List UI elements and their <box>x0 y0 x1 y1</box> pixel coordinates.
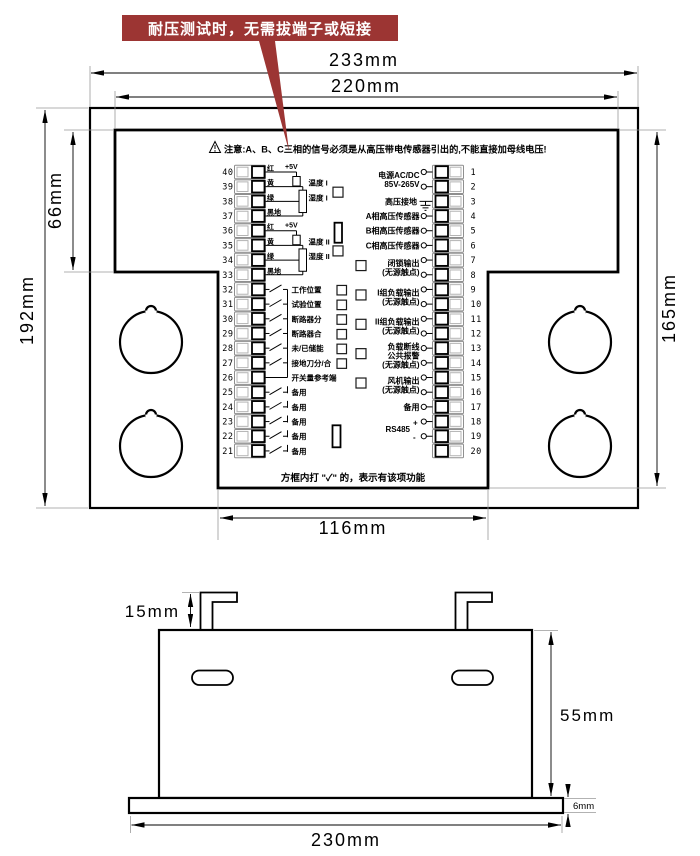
group-label: 风机输出 <box>388 375 420 385</box>
rs485-minus: - <box>413 433 416 442</box>
switch-label: 断路器分 <box>292 314 322 324</box>
group-label: C相高压传感器 <box>366 240 421 250</box>
terminal-row-left: 34 <box>222 253 265 267</box>
terminal-row-left: 29 <box>222 327 265 341</box>
terminal-row-left: 35 <box>222 239 265 253</box>
wire-label: 黑地 <box>267 208 281 217</box>
terminal-number: 18 <box>471 418 482 428</box>
function-checkbox <box>356 261 366 271</box>
group-label: A相高压传感器 <box>366 211 421 221</box>
wire-label: 绿 <box>267 193 275 202</box>
terminal-number: 25 <box>222 388 233 398</box>
group-label: 备用 <box>403 402 420 412</box>
group-label: 电源AC/DC <box>378 170 420 180</box>
terminal-number: 13 <box>471 344 482 354</box>
dim-top-band: 66mm <box>45 171 65 229</box>
switch-label: 备用 <box>291 431 307 441</box>
terminal-number: 6 <box>471 241 477 251</box>
sensor-label: 湿度 II <box>309 251 330 261</box>
terminal-row-right: 11 <box>433 312 482 326</box>
terminal-number: 31 <box>222 300 233 310</box>
switch-label: 备用 <box>291 446 307 456</box>
terminal-row-right: 19 <box>433 429 482 443</box>
terminal-row-left: 22 <box>222 429 265 443</box>
function-checkbox <box>337 359 347 369</box>
warning-text: 注意:A、B、C三相的信号必须是从高压带电传感器引出的,不能直接加母线电压! <box>224 144 547 155</box>
function-checkbox <box>356 319 366 329</box>
dim-hook: 15mm <box>125 602 180 621</box>
terminal-row-left: 38 <box>222 195 265 209</box>
switch-label: 试验位置 <box>292 299 322 309</box>
terminal-row-left: 40 <box>222 165 265 179</box>
group-label: 负载断线 <box>388 342 420 352</box>
terminal-number: 34 <box>222 256 233 266</box>
terminal-number: 39 <box>222 183 233 193</box>
function-checkbox <box>337 329 347 339</box>
dim-flange-width: 230mm <box>311 830 381 850</box>
terminal-number: 11 <box>471 315 482 325</box>
switch-label: 备用 <box>291 402 307 412</box>
terminal-number: 10 <box>471 300 482 310</box>
terminal-number: 15 <box>471 374 482 384</box>
terminal-number: 32 <box>222 285 233 295</box>
function-checkbox <box>337 315 347 325</box>
terminal-row-right: 18 <box>433 415 482 429</box>
terminal-row-right: 13 <box>433 341 482 355</box>
terminal-number: 33 <box>222 271 233 281</box>
group-label: B相高压传感器 <box>366 226 421 236</box>
terminal-number: 9 <box>471 285 477 295</box>
dim-outer-height: 192mm <box>17 275 37 345</box>
terminal-number: 35 <box>222 241 233 251</box>
switch-label: 工作位置 <box>292 284 322 294</box>
group-label: (无源触点) <box>382 384 420 394</box>
terminal-row-left: 24 <box>222 400 265 414</box>
right-hook <box>456 593 493 631</box>
switch-label: 开关量参考端 <box>292 373 337 383</box>
terminal-row-right: 10 <box>433 297 482 311</box>
group-label: (无源触点) <box>382 326 420 336</box>
terminal-row-left: 30 <box>222 312 265 326</box>
terminal-number: 24 <box>222 403 233 413</box>
body-outline <box>159 630 532 798</box>
terminal-number: 4 <box>471 212 477 222</box>
flange-outline <box>129 798 563 813</box>
group-label: 公共报警 <box>388 351 420 361</box>
terminal-row-left: 28 <box>222 341 265 355</box>
wire-label: 红 <box>267 164 274 173</box>
function-checkbox <box>356 349 366 359</box>
dim-column-width: 116mm <box>319 518 388 538</box>
switch-label: 未/已储能 <box>292 343 325 353</box>
terminal-number: 12 <box>471 329 482 339</box>
terminal-row-right: 8 <box>433 268 477 282</box>
sensor-label: 温度 II <box>309 236 330 246</box>
switch-label: 接地刀分/合 <box>292 358 332 368</box>
supply-label: +5V <box>285 223 298 230</box>
group-label: (无源触点) <box>382 360 420 370</box>
switch-label: 断路器合 <box>292 328 322 338</box>
terminal-number: 22 <box>222 432 233 442</box>
terminal-row-right: 5 <box>433 224 477 238</box>
terminal-number: 23 <box>222 418 233 428</box>
function-checkbox <box>337 300 347 310</box>
terminal-number: 19 <box>471 432 482 442</box>
wire-label: 黄 <box>267 237 274 246</box>
terminal-row-left: 21 <box>222 444 265 458</box>
wire-label: 黑地 <box>267 266 281 275</box>
terminal-row-right: 17 <box>433 400 482 414</box>
group-label: (无源触点) <box>382 267 420 277</box>
terminal-number: 14 <box>471 359 482 369</box>
terminal-row-left: 31 <box>222 297 265 311</box>
side-view: 15mm 55mm 6mm 230mm <box>125 593 615 851</box>
banner: 耐压测试时，无需拔端子或短接 <box>122 15 398 41</box>
wire-label: 黄 <box>267 178 274 187</box>
group-label: 85V-265V <box>384 180 420 189</box>
terminal-row-right: 4 <box>433 209 477 223</box>
terminal-number: 5 <box>471 227 477 237</box>
terminal-row-right: 1 <box>433 165 477 179</box>
terminal-number: 38 <box>222 197 233 207</box>
dim-outer-width: 233mm <box>329 50 399 70</box>
terminal-row-right: 20 <box>433 444 482 458</box>
sensor-label: 温度 I <box>309 178 328 188</box>
terminal-row-left: 23 <box>222 415 265 429</box>
group-label: (无源触点) <box>382 296 420 306</box>
terminal-number: 28 <box>222 344 233 354</box>
group-label: 高压接地 <box>385 196 417 206</box>
dim-body-height: 55mm <box>560 706 615 725</box>
function-checkbox <box>356 290 366 300</box>
dim-flange-thickness: 6mm <box>573 801 594 812</box>
group-label: II组负载输出 <box>375 317 419 327</box>
terminal-row-right: 7 <box>433 253 477 267</box>
switch-label: 备用 <box>291 417 307 427</box>
terminal-number: 40 <box>222 168 233 178</box>
terminal-number: 27 <box>222 359 233 369</box>
terminal-row-right: 15 <box>433 371 482 385</box>
terminal-number: 7 <box>471 256 477 266</box>
function-checkbox <box>333 187 343 197</box>
terminal-number: 36 <box>222 227 233 237</box>
terminal-row-right: 12 <box>433 327 482 341</box>
wire-label: 红 <box>267 222 274 231</box>
terminal-number: 37 <box>222 212 233 222</box>
terminal-row-left: 25 <box>222 385 265 399</box>
terminal-row-right: 3 <box>433 195 477 209</box>
terminal-row-right: 6 <box>433 239 477 253</box>
function-checkbox <box>337 285 347 295</box>
terminal-row-left: 37 <box>222 209 265 223</box>
drawing-canvas: 233mm 220mm 192mm 66mm 165mm 116mm 注意:A、… <box>0 0 700 856</box>
terminal-row-left: 32 <box>222 283 265 297</box>
terminal-number: 16 <box>471 388 482 398</box>
terminal-row-right: 9 <box>433 283 477 297</box>
terminal-row-left: 36 <box>222 224 265 238</box>
terminal-number: 2 <box>471 183 477 193</box>
function-checkbox <box>333 246 343 256</box>
group-label: I组负载输出 <box>377 287 419 297</box>
terminal-number: 17 <box>471 403 482 413</box>
terminal-number: 29 <box>222 329 233 339</box>
dim-inner-height: 165mm <box>659 273 679 343</box>
switch-label: 备用 <box>291 387 307 397</box>
terminal-row-right: 14 <box>433 356 482 370</box>
terminal-row-left: 39 <box>222 180 265 194</box>
terminal-number: 30 <box>222 315 233 325</box>
group-label: 闭锁输出 <box>388 258 420 268</box>
terminal-number: 8 <box>471 271 477 281</box>
technical-drawing: 233mm 220mm 192mm 66mm 165mm 116mm 注意:A、… <box>0 0 700 856</box>
supply-label: +5V <box>285 164 298 171</box>
panel-note: 方框内打 "✓" 的，表示有该项功能 <box>281 472 426 484</box>
function-checkbox <box>337 344 347 354</box>
group-label: RS485 <box>386 425 411 434</box>
terminal-number: 1 <box>471 168 477 178</box>
wire-label: 绿 <box>267 252 275 261</box>
terminal-row-left: 26 <box>222 371 265 385</box>
left-hook <box>201 593 238 631</box>
terminal-number: 20 <box>471 447 482 457</box>
terminal-number: 26 <box>222 374 233 384</box>
terminal-row-right: 16 <box>433 385 482 399</box>
terminal-row-left: 33 <box>222 268 265 282</box>
terminal-number: 21 <box>222 447 233 457</box>
top-view: 233mm 220mm 192mm 66mm 165mm 116mm 注意:A、… <box>17 50 679 540</box>
function-checkbox <box>356 378 366 388</box>
rs485-plus: + <box>413 419 418 428</box>
sensor-label: 湿度 I <box>309 192 328 202</box>
terminal-row-left: 27 <box>222 356 265 370</box>
terminal-number: 3 <box>471 197 477 207</box>
dim-inner-width: 220mm <box>331 76 401 96</box>
terminal-row-right: 2 <box>433 180 477 194</box>
